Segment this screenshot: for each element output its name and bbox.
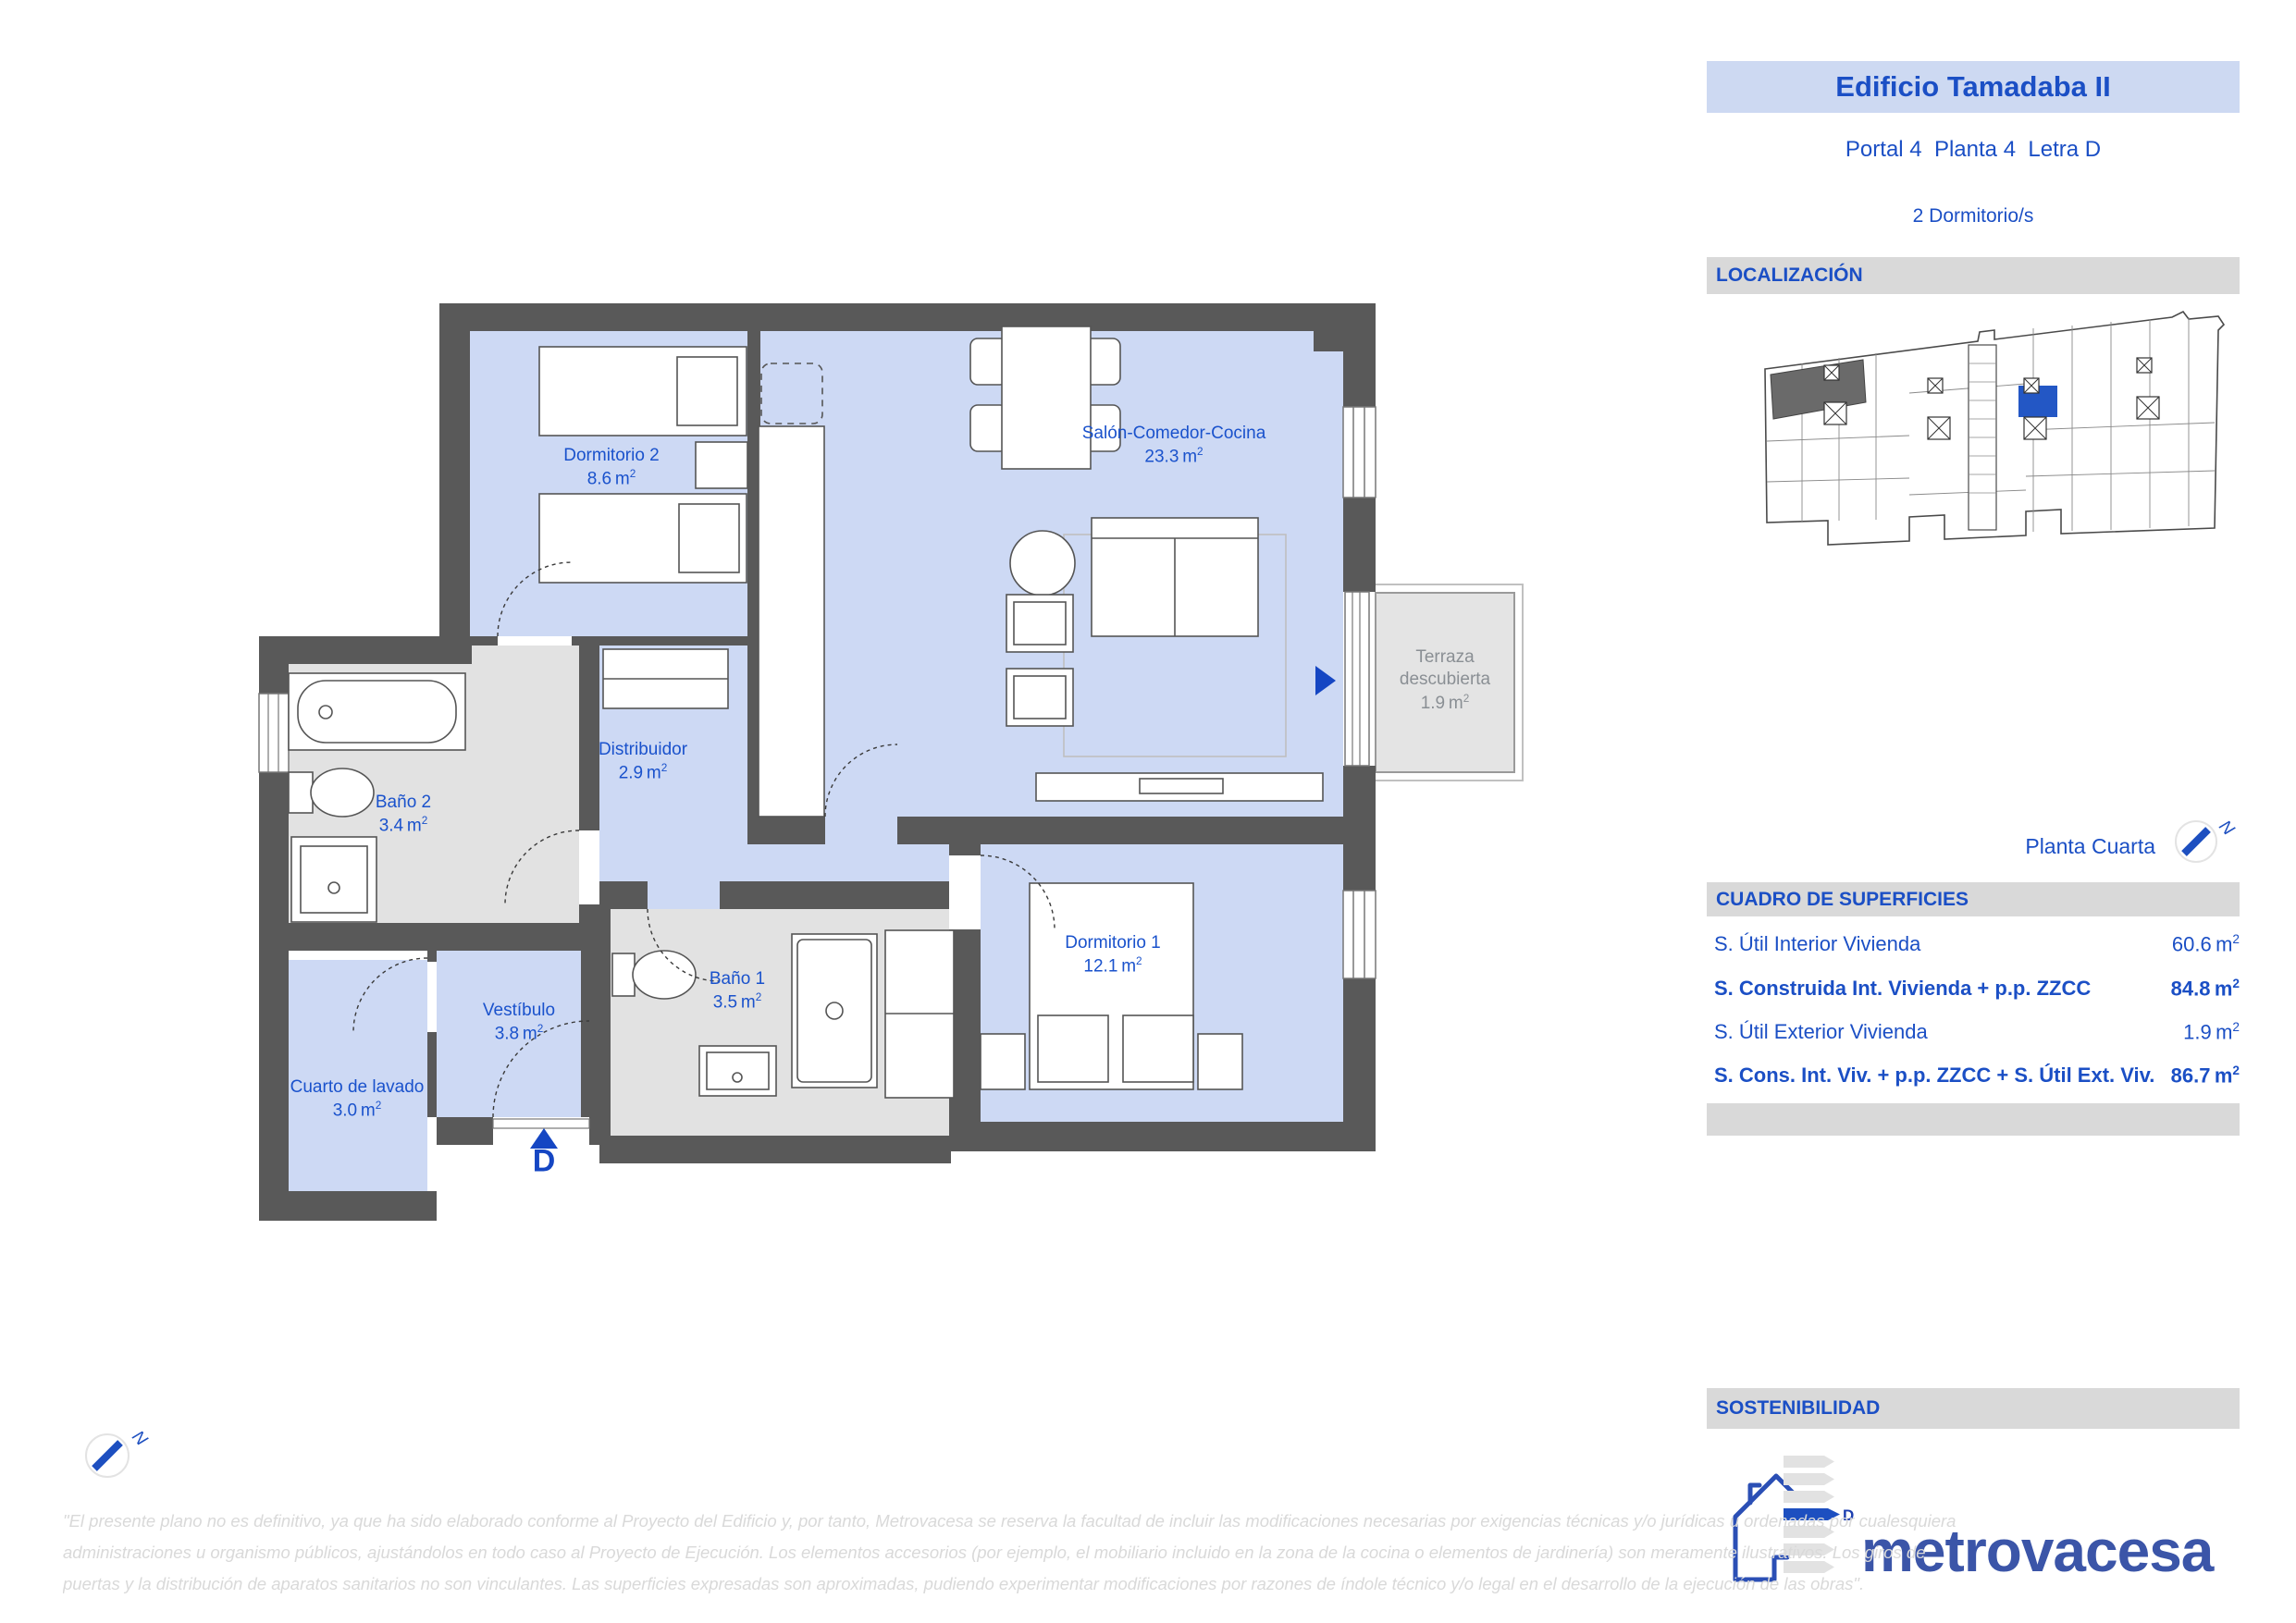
site-locator-plan bbox=[1747, 301, 2246, 589]
compass-north-label: N bbox=[2215, 817, 2238, 839]
sheet-title-band: Edificio Tamadaba II bbox=[1707, 61, 2240, 113]
room-label-vestibulo: Vestíbulo 3.8 m2 bbox=[483, 1000, 555, 1046]
surface-row: S. Útil Exterior Vivienda 1.9 m2 bbox=[1707, 1017, 2240, 1047]
sheet-title: Edificio Tamadaba II bbox=[1835, 70, 2110, 104]
room-label-dormitorio1: Dormitorio 1 12.1 m2 bbox=[1065, 932, 1160, 978]
surface-row: S. Construida Int. Vivienda + p.p. ZZCC … bbox=[1707, 974, 2240, 1003]
compass-icon: N bbox=[2170, 812, 2242, 873]
room-label-bano2: Baño 2 3.4 m2 bbox=[376, 792, 431, 838]
compass-icon: N bbox=[74, 1420, 157, 1485]
floor-plan bbox=[250, 296, 1545, 1235]
unit-identifier: Portal 4 Planta 4 Letra D bbox=[1707, 137, 2240, 163]
section-header-localizacion: LOCALIZACIÓN bbox=[1707, 257, 2240, 294]
bedroom-count: 2 Dormitorio/s bbox=[1707, 205, 2240, 227]
room-label-terraza: Terrazadescubierta 1.9 m2 bbox=[1400, 646, 1490, 715]
room-label-lavado: Cuarto de lavado 3.0 m2 bbox=[290, 1076, 425, 1123]
section-header-cuadro: CUADRO DE SUPERFICIES bbox=[1707, 882, 2240, 916]
room-label-salon: Salón-Comedor-Cocina 23.3 m2 bbox=[1082, 423, 1266, 469]
empty-band bbox=[1707, 1103, 2240, 1136]
room-label-dormitorio2: Dormitorio 2 8.6 m2 bbox=[563, 445, 659, 491]
disclaimer-text: "El presente plano no es definitivo, ya … bbox=[63, 1506, 2033, 1600]
compass-north-label: N bbox=[128, 1427, 151, 1449]
floor-name: Planta Cuarta bbox=[1878, 834, 2155, 859]
surface-row: S. Cons. Int. Viv. + p.p. ZZCC + S. Útil… bbox=[1707, 1061, 2240, 1090]
section-header-sostenibilidad: SOSTENIBILIDAD bbox=[1707, 1388, 2240, 1429]
room-label-bano1: Baño 1 3.5 m2 bbox=[710, 968, 765, 1014]
room-label-distribuidor: Distribuidor 2.9 m2 bbox=[599, 739, 687, 785]
entrance-letter: D bbox=[533, 1144, 556, 1180]
surface-row: S. Útil Interior Vivienda 60.6 m2 bbox=[1707, 929, 2240, 959]
